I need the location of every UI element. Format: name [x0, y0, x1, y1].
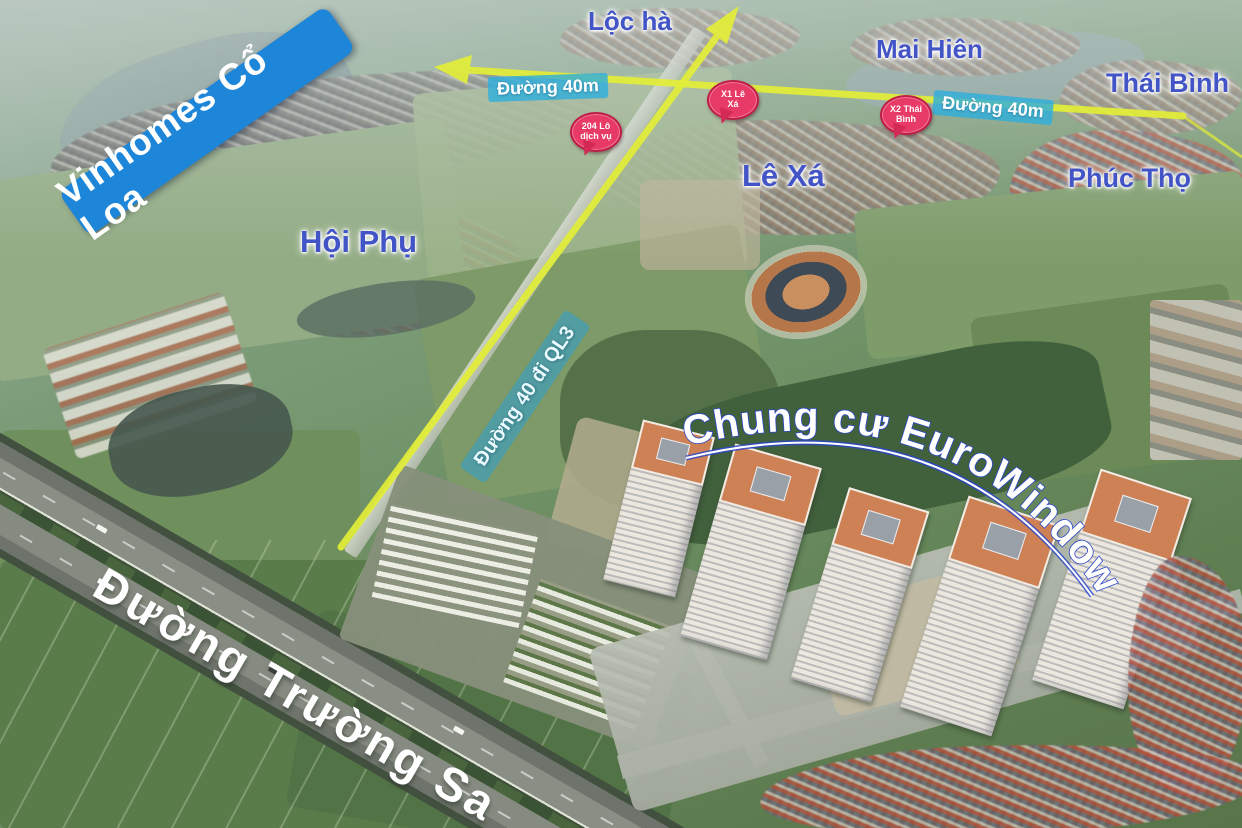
pin-204-lo-dich-vu: 204 Lô dịch vụ: [570, 112, 622, 152]
place-label-mai-hien: Mai Hiên: [876, 34, 983, 65]
pin-text-line2: dịch vụ: [580, 132, 612, 142]
vehicle: [96, 524, 108, 534]
place-label-le-xa: Lê Xá: [742, 158, 825, 194]
pin-text-line2: Xá: [727, 100, 738, 110]
aerial-photo-canvas: Chung cư EuroWindow Vinhomes Cổ Loa Lộc …: [0, 0, 1242, 828]
place-label-hoi-phu: Hội Phụ: [300, 224, 417, 260]
place-label-loc-ha: Lộc hà: [588, 6, 672, 37]
parked-trucks-rows: [372, 504, 538, 628]
pin-x2-thai-binh: X2 Thái Bình: [880, 95, 932, 135]
pin-text-line2: Bình: [896, 115, 916, 125]
buildings-right-edge: [1150, 300, 1242, 460]
pin-x1-le-xa: X1 Lê Xá: [707, 80, 759, 120]
road-tag-duong-40m-left: Đường 40m: [488, 73, 609, 102]
place-label-thai-binh: Thái Bình: [1106, 68, 1229, 99]
place-label-phuc-tho: Phúc Thọ: [1068, 163, 1191, 194]
